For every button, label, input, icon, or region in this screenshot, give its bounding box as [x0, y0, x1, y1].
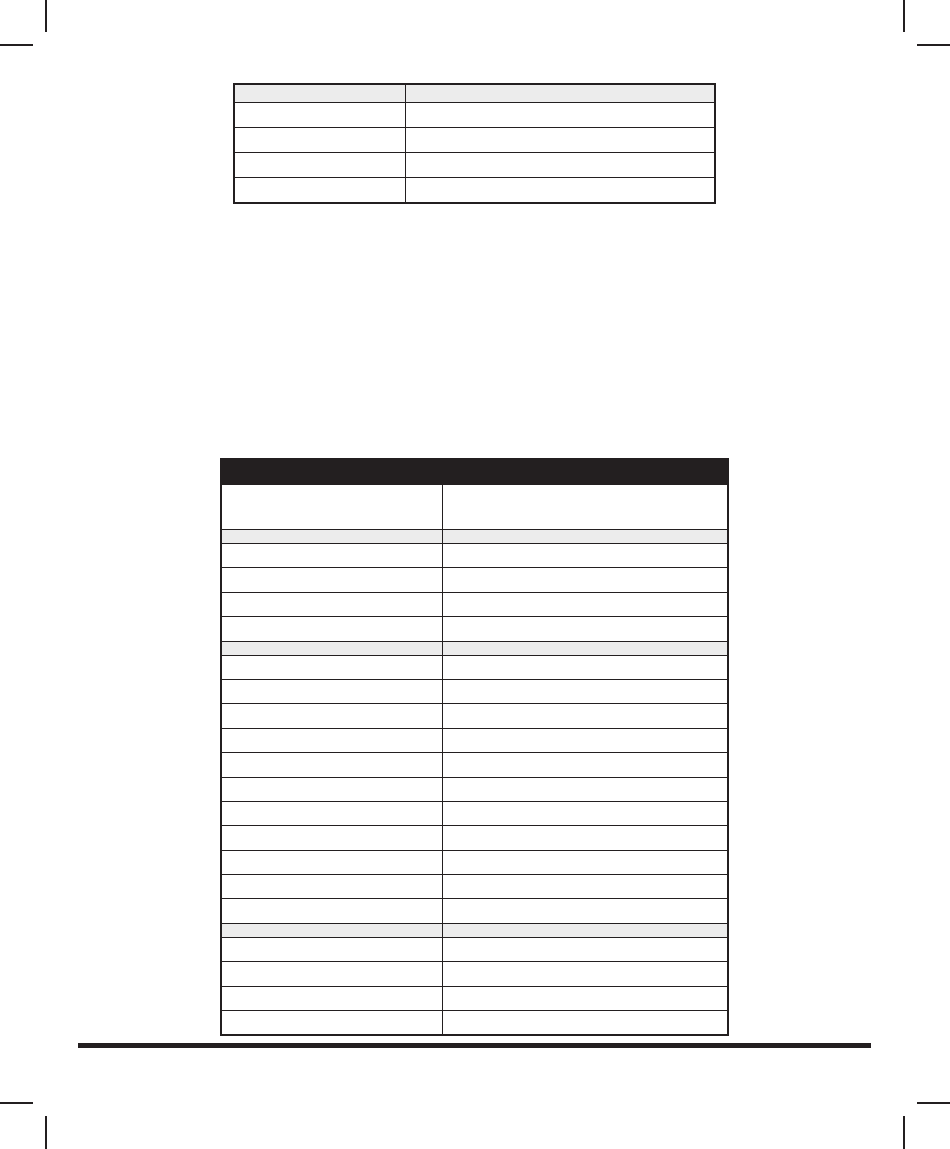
table-cell	[443, 680, 727, 703]
table-cell	[222, 987, 443, 1010]
table-row-data	[235, 152, 714, 177]
table-cell	[222, 656, 443, 679]
table-cell	[443, 962, 727, 985]
crop-mark-top-right-vertical	[903, 0, 905, 32]
table-cell	[443, 826, 727, 849]
table-row-data	[222, 752, 727, 776]
table-row-section	[222, 923, 727, 937]
table-cell	[222, 899, 443, 922]
table-cell	[443, 729, 727, 752]
table-row-data	[222, 986, 727, 1010]
table-row-data	[222, 1010, 727, 1034]
crop-mark-top-left-horizontal	[0, 44, 33, 46]
table-row-data	[235, 102, 714, 127]
crop-mark-bottom-right-horizontal	[917, 1102, 950, 1104]
table-row-data	[222, 777, 727, 801]
table-cell	[235, 128, 406, 152]
table-cell	[222, 593, 443, 616]
table-cell	[222, 826, 443, 849]
bottom-table	[220, 458, 729, 1036]
table-cell	[222, 962, 443, 985]
table-cell	[222, 729, 443, 752]
table-cell	[222, 938, 443, 961]
table-cell	[443, 485, 727, 529]
table-cell	[222, 642, 443, 655]
crop-mark-bottom-right-vertical	[903, 1116, 905, 1149]
table-cell	[443, 899, 727, 922]
top-table-rows	[233, 83, 716, 204]
crop-mark-bottom-left-vertical	[45, 1116, 47, 1149]
table-cell	[443, 642, 727, 655]
table-cell	[443, 753, 727, 776]
table-cell	[443, 568, 727, 591]
table-row-data	[222, 937, 727, 961]
table-row-data	[235, 177, 714, 202]
table-cell	[222, 1011, 443, 1034]
table-cell	[443, 530, 727, 543]
bottom-table-rows	[220, 483, 729, 1036]
bottom-table-title-bar	[220, 458, 729, 483]
crop-mark-top-left-vertical	[45, 0, 47, 32]
table-cell	[443, 617, 727, 640]
table-cell	[443, 938, 727, 961]
table-row-data	[222, 898, 727, 922]
table-row-data	[222, 703, 727, 727]
table-row-data	[222, 874, 727, 898]
table-row-data	[222, 961, 727, 985]
table-row-data	[222, 825, 727, 849]
top-table	[233, 83, 716, 204]
table-cell	[222, 680, 443, 703]
table-row-data	[222, 592, 727, 616]
table-cell	[443, 851, 727, 874]
table-row-data	[222, 655, 727, 679]
table-row-data	[222, 543, 727, 567]
table-row-header	[235, 85, 714, 102]
table-cell	[222, 544, 443, 567]
crop-mark-top-right-horizontal	[917, 44, 950, 46]
table-cell	[235, 153, 406, 177]
table-cell	[222, 802, 443, 825]
table-row-data	[235, 127, 714, 152]
table-cell	[443, 778, 727, 801]
table-cell	[222, 530, 443, 543]
table-cell	[406, 103, 714, 127]
table-cell	[406, 153, 714, 177]
table-cell	[222, 924, 443, 937]
table-cell	[222, 617, 443, 640]
table-row-data	[222, 616, 727, 640]
table-cell	[443, 544, 727, 567]
table-cell	[443, 1011, 727, 1034]
table-row-data	[222, 567, 727, 591]
table-cell	[222, 704, 443, 727]
table-row-data	[222, 850, 727, 874]
table-row-colheader	[222, 485, 727, 529]
table-cell	[406, 85, 714, 102]
table-row-data	[222, 679, 727, 703]
table-cell	[222, 778, 443, 801]
table-cell	[235, 178, 406, 202]
table-cell	[443, 987, 727, 1010]
table-cell	[443, 656, 727, 679]
table-cell	[443, 704, 727, 727]
table-cell	[222, 568, 443, 591]
table-cell	[222, 485, 443, 529]
table-cell	[222, 753, 443, 776]
table-row-section	[222, 529, 727, 543]
table-cell	[406, 178, 714, 202]
table-cell	[222, 875, 443, 898]
table-cell	[222, 851, 443, 874]
table-cell	[235, 85, 406, 102]
table-row-data	[222, 801, 727, 825]
table-cell	[443, 875, 727, 898]
table-row-data	[222, 728, 727, 752]
document-page	[0, 0, 950, 1149]
table-row-section	[222, 641, 727, 655]
footer-rule	[78, 1043, 871, 1048]
table-cell	[443, 924, 727, 937]
table-cell	[443, 593, 727, 616]
table-cell	[235, 103, 406, 127]
table-cell	[443, 802, 727, 825]
crop-mark-bottom-left-horizontal	[0, 1102, 33, 1104]
table-cell	[406, 128, 714, 152]
